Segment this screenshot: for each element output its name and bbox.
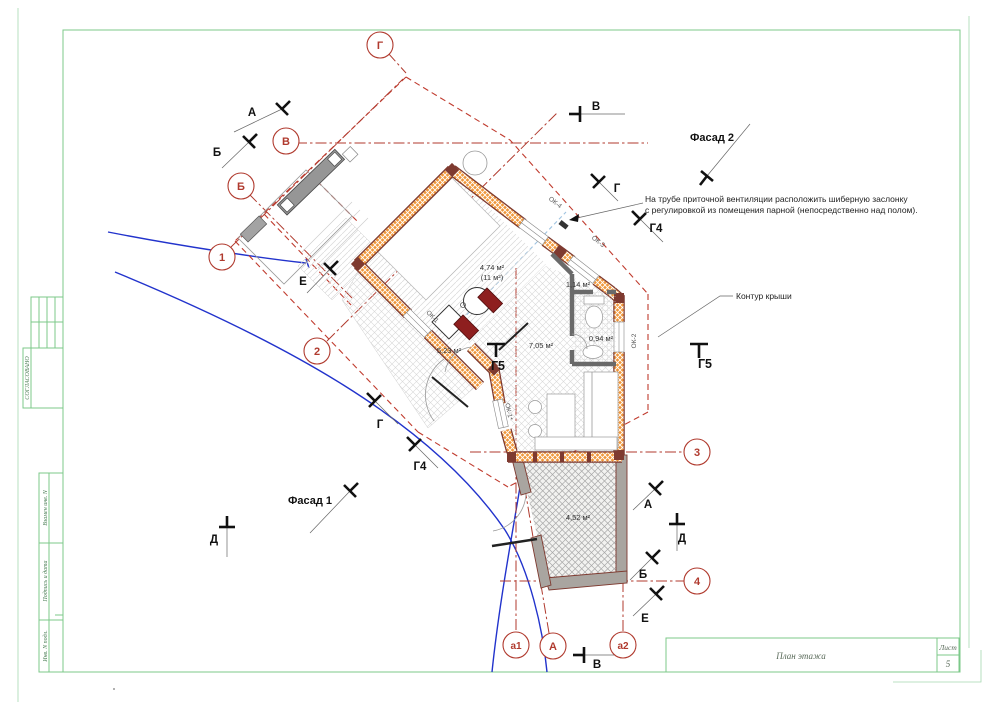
stamp-vzamen-label: Взамен инв. N (43, 489, 49, 526)
retaining-block-body (240, 216, 266, 242)
vent-symbol (558, 220, 568, 229)
terrace-handrail (492, 539, 537, 546)
drawing-sheet: СОГЛАСОВАНО Взамен инв. N Подпись и дата… (0, 0, 990, 708)
sheet-number: 5 (946, 659, 951, 669)
flag-g5-center-label: Г5 (491, 359, 505, 373)
facade-2-marker: Фасад 2 (690, 124, 750, 185)
vent-note-line1: На трубе приточной вентиляции расположит… (645, 194, 908, 204)
toilet-bowl (586, 306, 603, 328)
joint-3 (587, 452, 591, 462)
flag-a-right: А (633, 481, 663, 511)
drawing-title: План этажа (775, 651, 826, 661)
axis-label-1: 1 (219, 252, 225, 264)
flag-g-right: Г (591, 174, 621, 201)
vent-note-line2: с регулировкой из помещения парной (непо… (645, 205, 918, 215)
joint-2 (560, 452, 564, 462)
window-label-ok2: ОК-2 (631, 333, 638, 348)
flag-g5-right: Г5 (690, 344, 712, 371)
sink (583, 346, 603, 359)
flag-v-top-label: В (592, 101, 600, 113)
facade-1-marker: Фасад 1 (288, 483, 358, 533)
flag-g4-left-label: Г4 (414, 461, 428, 473)
building-plan (238, 146, 627, 590)
flag-g4-right: Г4 (632, 211, 663, 242)
stray-dot (113, 688, 115, 690)
flag-b-right-label: Б (639, 569, 647, 581)
stamp-minitable-grid (31, 297, 63, 348)
facade-1-label: Фасад 1 (288, 495, 332, 507)
flag-e-right: Е (633, 586, 664, 625)
floor-plan-canvas: СОГЛАСОВАНО Взамен инв. N Подпись и дата… (0, 0, 990, 708)
bench-bed (584, 372, 618, 448)
axis-label-a2: а2 (617, 641, 629, 652)
axis-label-2: 2 (314, 346, 320, 358)
pergola-beam (277, 149, 344, 215)
stamp-inv-label: Инв. N подл. (42, 630, 49, 663)
axis-label-b: Б (237, 181, 245, 193)
flag-a-right-label: А (644, 499, 652, 511)
site-curve-1 (108, 232, 306, 263)
roof-label-leader (658, 296, 733, 337)
flag-g-left: Г (367, 393, 398, 431)
flag-d-left: Д (210, 516, 235, 557)
room-area-hall: 1,14 м² (566, 280, 591, 289)
terrace-wall-right (616, 455, 627, 583)
table (547, 394, 575, 440)
terrace-door-arc (493, 494, 526, 531)
stamp-column: СОГЛАСОВАНО Взамен инв. N Подпись и дата… (23, 297, 63, 672)
retaining-block (240, 216, 266, 242)
flag-g4-right-label: Г4 (650, 223, 664, 235)
sheet-label: Лист (938, 643, 957, 652)
room-area-terrace: 4,52 м² (566, 513, 591, 522)
axis-label-g: Г (377, 40, 384, 52)
corner-sw (507, 452, 516, 462)
axis-label-a: А (549, 641, 557, 653)
flag-g5-right-label: Г5 (698, 357, 712, 371)
flag-v-bottom-label: В (593, 659, 601, 671)
title-block: План этажа Лист 5 (666, 638, 959, 672)
flag-a-topleft-label: А (248, 107, 256, 119)
flag-a-topleft: А (234, 101, 290, 132)
roof-contour-label: Контур крыши (736, 291, 792, 301)
room-area-rest: 7,05 м² (529, 341, 554, 350)
flag-b-topleft: Б (213, 134, 257, 168)
wall-bench (535, 437, 617, 450)
stamp-podpis-label: Подпись и дата (42, 560, 49, 602)
room-area-parnaya: 4,74 м² (480, 263, 505, 272)
axis-label-3: 3 (694, 447, 700, 459)
flag-g-left-label: Г (377, 419, 384, 431)
flag-e-left-label: Е (299, 276, 307, 288)
flag-v-top: В (569, 101, 625, 122)
terrace-floor (520, 462, 616, 582)
flag-b-topleft-label: Б (213, 147, 221, 159)
room-area-entry: 5,23 м² (437, 346, 462, 355)
facade-2-label: Фасад 2 (690, 132, 734, 144)
flag-b-right: Б (630, 550, 660, 581)
stool-2 (529, 425, 542, 438)
room-area-bath: 0,94 м² (589, 334, 614, 343)
flag-e-right-label: Е (641, 613, 649, 625)
flag-g-right-label: Г (614, 183, 621, 195)
axis-line-g (388, 53, 406, 73)
flag-d-right: Д (669, 513, 686, 551)
window-label-ok3: ОК-3 (590, 235, 606, 250)
stool-1 (529, 401, 542, 414)
corner-se (614, 450, 624, 460)
axis-label-4: 4 (694, 576, 701, 588)
flag-d-right-label: Д (678, 533, 686, 545)
vent-arrow (569, 214, 579, 222)
window-label-ok4: ОК-4 (547, 196, 563, 211)
flag-d-left-label: Д (210, 534, 218, 546)
axis-label-a1: а1 (510, 641, 522, 652)
room-area-parnaya-note: (11 м²) (481, 273, 504, 282)
axis-label-v: В (282, 136, 290, 148)
stamp-soglasovano-label: СОГЛАСОВАНО (25, 356, 31, 400)
vent-symbol-body (558, 220, 568, 229)
column-circle (463, 151, 487, 175)
joint-1 (533, 452, 537, 462)
toilet-tank (584, 296, 604, 304)
